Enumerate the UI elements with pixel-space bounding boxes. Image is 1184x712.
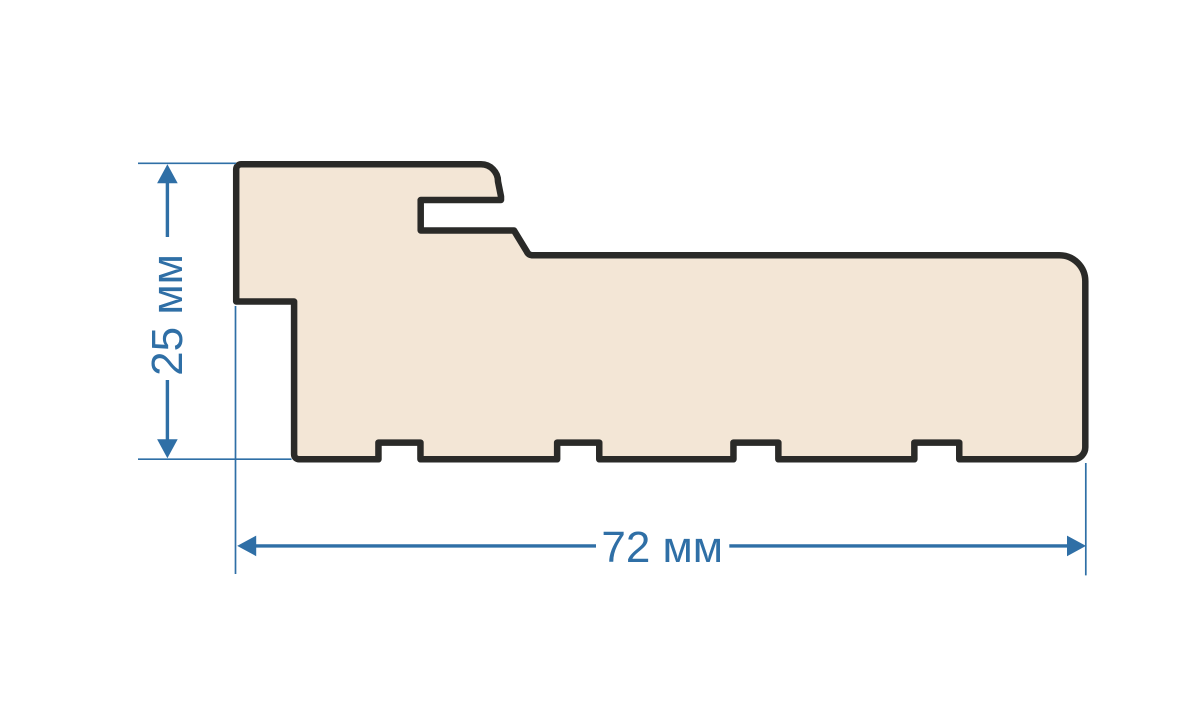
svg-text:72 мм: 72 мм: [601, 523, 723, 572]
svg-text:25 мм: 25 мм: [143, 254, 192, 376]
